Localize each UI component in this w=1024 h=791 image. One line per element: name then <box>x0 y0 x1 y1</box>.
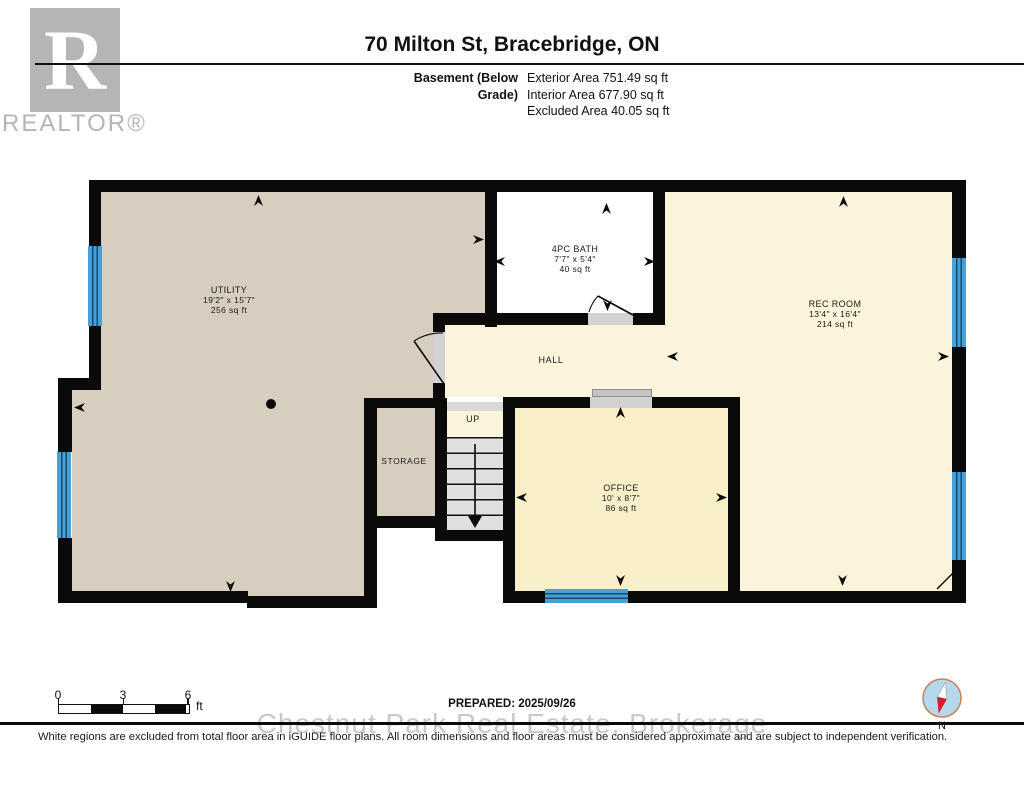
room-area: 86 sq ft <box>521 503 721 513</box>
wall <box>364 398 377 608</box>
realtor-logo-wordmark: REALTOR® <box>2 110 142 138</box>
wall <box>652 397 740 408</box>
utility-room-area <box>72 390 364 596</box>
wall <box>952 560 966 603</box>
window <box>88 246 102 326</box>
room-dims: 19'2" x 15'7" <box>129 295 329 305</box>
wall <box>503 397 590 408</box>
direction-arrow <box>224 580 237 593</box>
wall <box>58 378 72 452</box>
office-door-panel <box>592 389 652 397</box>
compass-north-label: N <box>938 720 946 732</box>
wall <box>952 347 966 472</box>
room-name: REC ROOM <box>735 299 935 309</box>
wall <box>433 313 445 332</box>
direction-arrow <box>252 194 265 207</box>
wall <box>728 397 740 603</box>
room-area: 256 sq ft <box>129 305 329 315</box>
room-name: UTILITY <box>129 285 329 295</box>
floor-plan-page: R REALTOR® 70 Milton St, Bracebridge, ON… <box>0 0 1024 791</box>
stairs-up-label: UP <box>433 414 513 424</box>
bath-door-opening <box>588 313 633 325</box>
disclaimer-text: White regions are excluded from total fl… <box>38 731 998 743</box>
room-area: 214 sq ft <box>735 319 935 329</box>
wall <box>89 180 101 246</box>
window <box>952 258 966 347</box>
rec-room-label: REC ROOM 13'4" x 16'4" 214 sq ft <box>735 299 935 329</box>
direction-arrow <box>666 350 679 363</box>
wall <box>433 383 445 403</box>
wall <box>376 516 435 528</box>
compass-icon: N <box>918 676 966 736</box>
direction-arrow <box>836 574 849 587</box>
utility-room-area <box>101 325 433 398</box>
direction-arrow <box>837 195 850 208</box>
realtor-logo: R <box>30 8 120 112</box>
bath-door-arc <box>589 296 598 312</box>
footer-divider <box>0 722 1024 725</box>
stairs-threshold <box>447 402 503 411</box>
direction-arrow <box>73 401 86 414</box>
direction-arrow <box>614 574 627 587</box>
floor-plan: UTILITY 19'2" x 15'7" 256 sq ft 4PC BATH… <box>0 0 1024 791</box>
direction-arrow <box>601 299 614 312</box>
wall <box>247 596 377 608</box>
utility-door-opening <box>433 332 445 383</box>
room-name: OFFICE <box>521 483 721 493</box>
hall-label: HALL <box>511 355 591 365</box>
wall <box>497 313 588 325</box>
realtor-logo-letter: R <box>44 17 106 103</box>
direction-arrow <box>715 491 728 504</box>
direction-arrow <box>614 406 627 419</box>
window <box>57 452 71 538</box>
direction-arrow <box>643 255 656 268</box>
wall <box>435 529 513 541</box>
wall <box>503 397 515 603</box>
wall <box>952 180 966 258</box>
window <box>952 472 966 560</box>
direction-arrow <box>493 255 506 268</box>
window <box>545 589 628 603</box>
office-room-label: OFFICE 10' x 8'7" 86 sq ft <box>521 483 721 513</box>
storage-label: STORAGE <box>364 456 444 466</box>
utility-room-label: UTILITY 19'2" x 15'7" 256 sq ft <box>129 285 329 315</box>
direction-arrow <box>472 233 485 246</box>
direction-arrow <box>515 491 528 504</box>
wall <box>58 591 248 603</box>
room-dims: 13'4" x 16'4" <box>735 309 935 319</box>
direction-arrow <box>937 350 950 363</box>
direction-arrow <box>600 202 613 215</box>
stair-treads <box>447 437 503 530</box>
room-dims: 10' x 8'7" <box>521 493 721 503</box>
prepared-date: PREPARED: 2025/09/26 <box>0 698 1024 710</box>
room-name: 4PC BATH <box>475 244 675 254</box>
title-divider <box>35 63 1024 65</box>
wall <box>89 180 966 192</box>
